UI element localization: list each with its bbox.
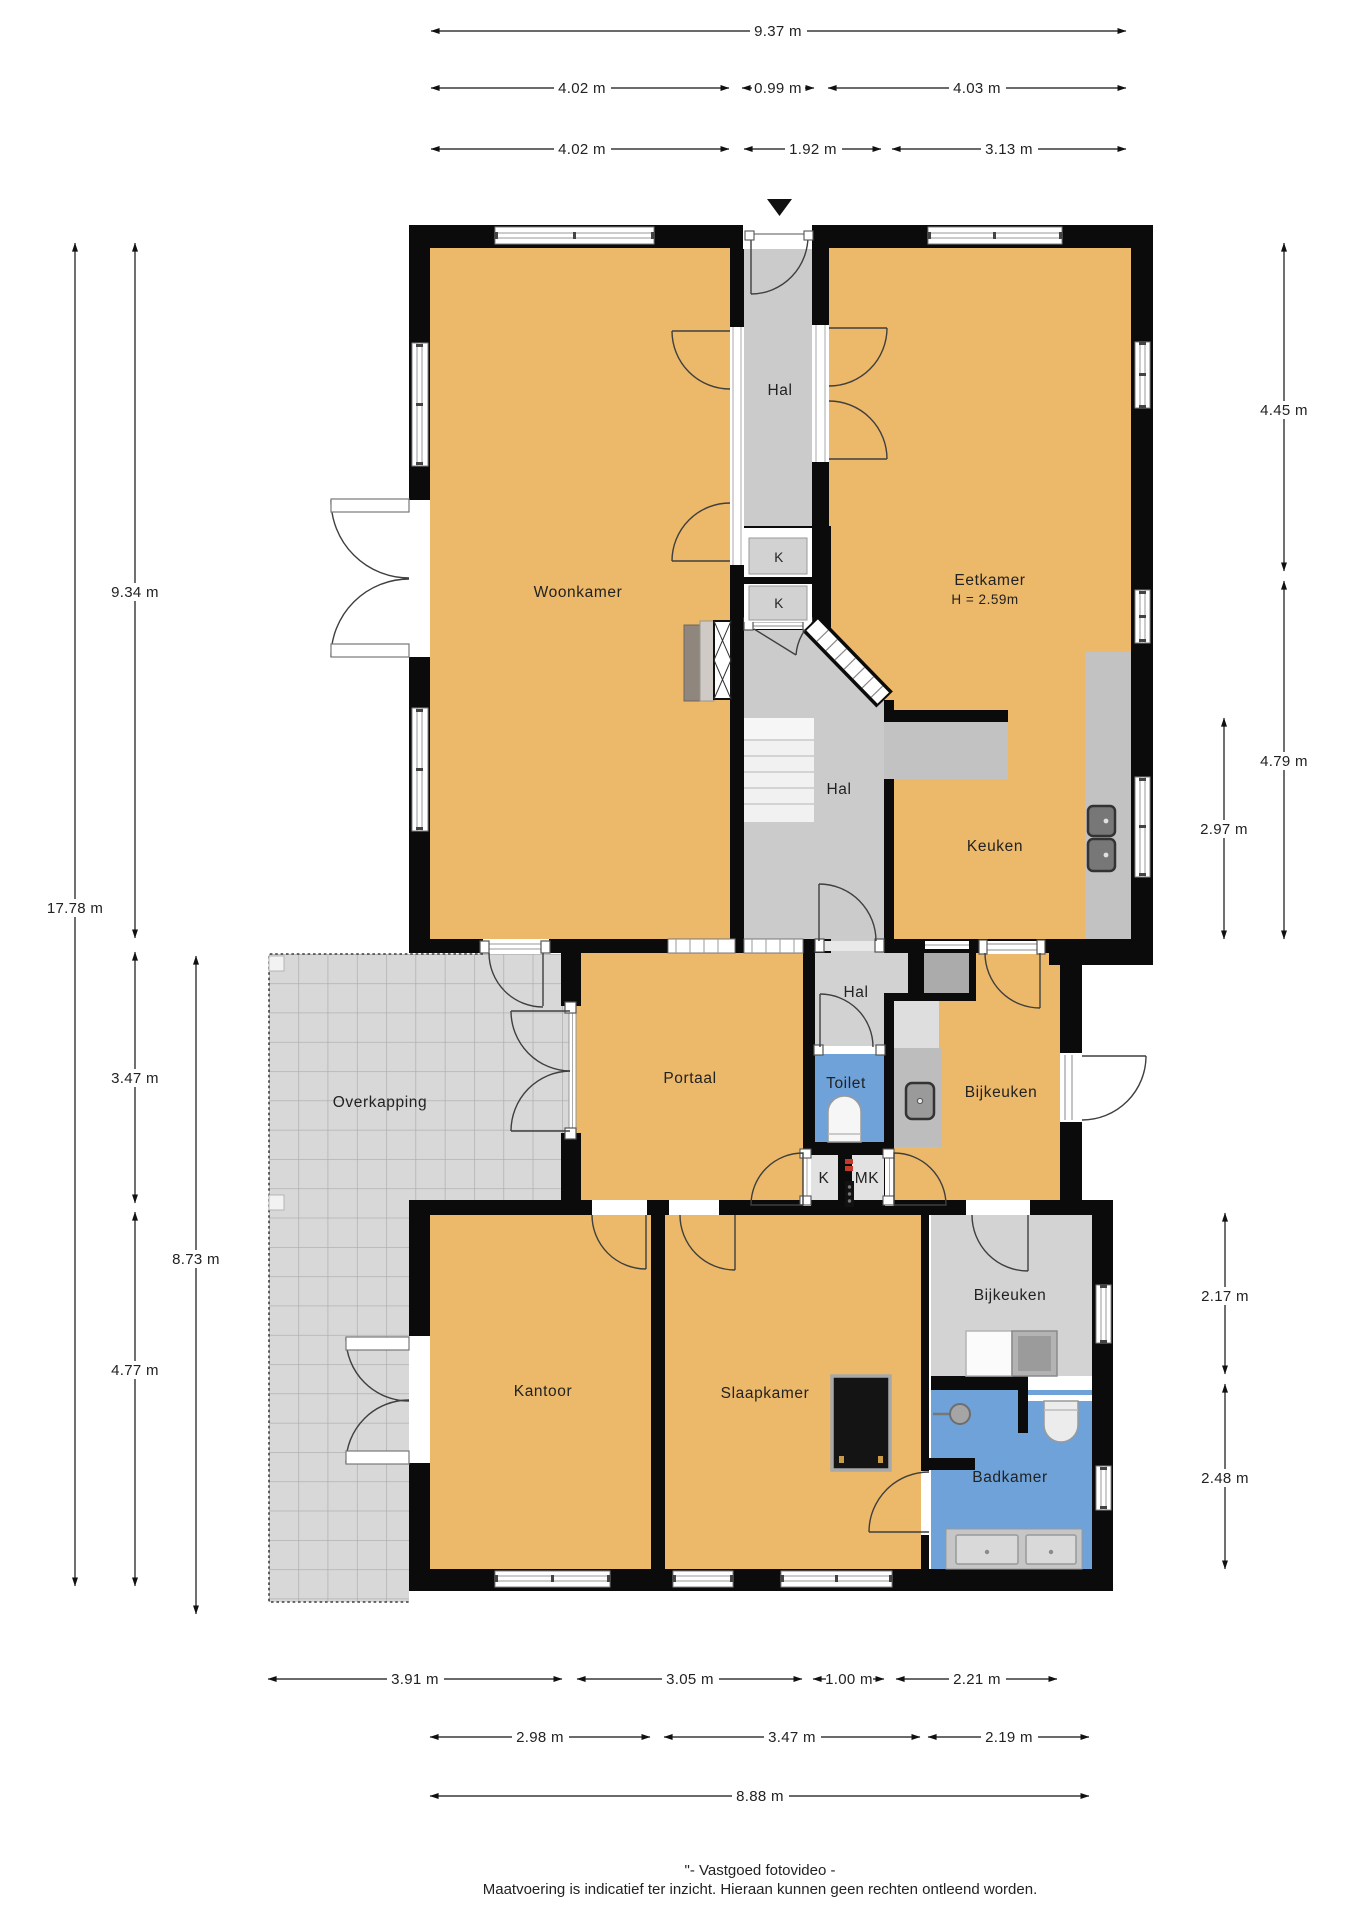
svg-text:0.99 m: 0.99 m (754, 80, 802, 97)
svg-text:Portaal: Portaal (663, 1070, 716, 1087)
svg-text:Overkapping: Overkapping (333, 1094, 427, 1111)
svg-text:3.13 m: 3.13 m (985, 141, 1033, 158)
svg-text:Slaapkamer: Slaapkamer (721, 1385, 810, 1402)
svg-text:Hal: Hal (826, 781, 851, 798)
svg-text:Maatvoering is indicatief ter: Maatvoering is indicatief ter inzicht. H… (483, 1881, 1038, 1898)
svg-text:4.45 m: 4.45 m (1260, 402, 1308, 419)
svg-text:Hal: Hal (843, 984, 868, 1001)
svg-text:K: K (774, 550, 784, 565)
svg-text:Keuken: Keuken (967, 838, 1023, 855)
svg-text:8.73 m: 8.73 m (172, 1251, 220, 1268)
svg-text:2.21 m: 2.21 m (953, 1671, 1001, 1688)
svg-text:2.17 m: 2.17 m (1201, 1288, 1249, 1305)
svg-text:2.98 m: 2.98 m (516, 1729, 564, 1746)
svg-text:4.03 m: 4.03 m (953, 80, 1001, 97)
svg-text:Bijkeuken: Bijkeuken (974, 1287, 1047, 1304)
svg-text:Eetkamer: Eetkamer (954, 572, 1025, 589)
svg-text:MK: MK (855, 1170, 880, 1187)
svg-text:Toilet: Toilet (826, 1075, 866, 1092)
svg-text:3.47 m: 3.47 m (768, 1729, 816, 1746)
svg-text:Badkamer: Badkamer (972, 1469, 1047, 1486)
svg-text:Bijkeuken: Bijkeuken (965, 1084, 1038, 1101)
svg-text:3.47 m: 3.47 m (111, 1070, 159, 1087)
svg-text:H = 2.59m: H = 2.59m (951, 592, 1018, 607)
svg-text:8.88 m: 8.88 m (736, 1788, 784, 1805)
svg-text:3.05 m: 3.05 m (666, 1671, 714, 1688)
svg-text:9.37 m: 9.37 m (754, 23, 802, 40)
svg-text:17.78 m: 17.78 m (47, 900, 103, 917)
svg-text:Hal: Hal (767, 382, 792, 399)
svg-text:1.92 m: 1.92 m (789, 141, 837, 158)
svg-text:4.02 m: 4.02 m (558, 80, 606, 97)
svg-text:9.34 m: 9.34 m (111, 584, 159, 601)
svg-text:2.97 m: 2.97 m (1200, 821, 1248, 838)
svg-text:2.48 m: 2.48 m (1201, 1470, 1249, 1487)
svg-text:2.19 m: 2.19 m (985, 1729, 1033, 1746)
svg-text:4.79 m: 4.79 m (1260, 753, 1308, 770)
svg-text:Woonkamer: Woonkamer (534, 584, 623, 601)
svg-text:K: K (774, 596, 784, 611)
svg-text:Kantoor: Kantoor (514, 1383, 573, 1400)
svg-text:3.91 m: 3.91 m (391, 1671, 439, 1688)
svg-text:K: K (819, 1170, 830, 1187)
svg-text:4.77 m: 4.77 m (111, 1362, 159, 1379)
svg-text:"- Vastgoed fotovideo -: "- Vastgoed fotovideo - (685, 1862, 836, 1879)
svg-text:4.02 m: 4.02 m (558, 141, 606, 158)
svg-text:1.00 m: 1.00 m (825, 1671, 873, 1688)
